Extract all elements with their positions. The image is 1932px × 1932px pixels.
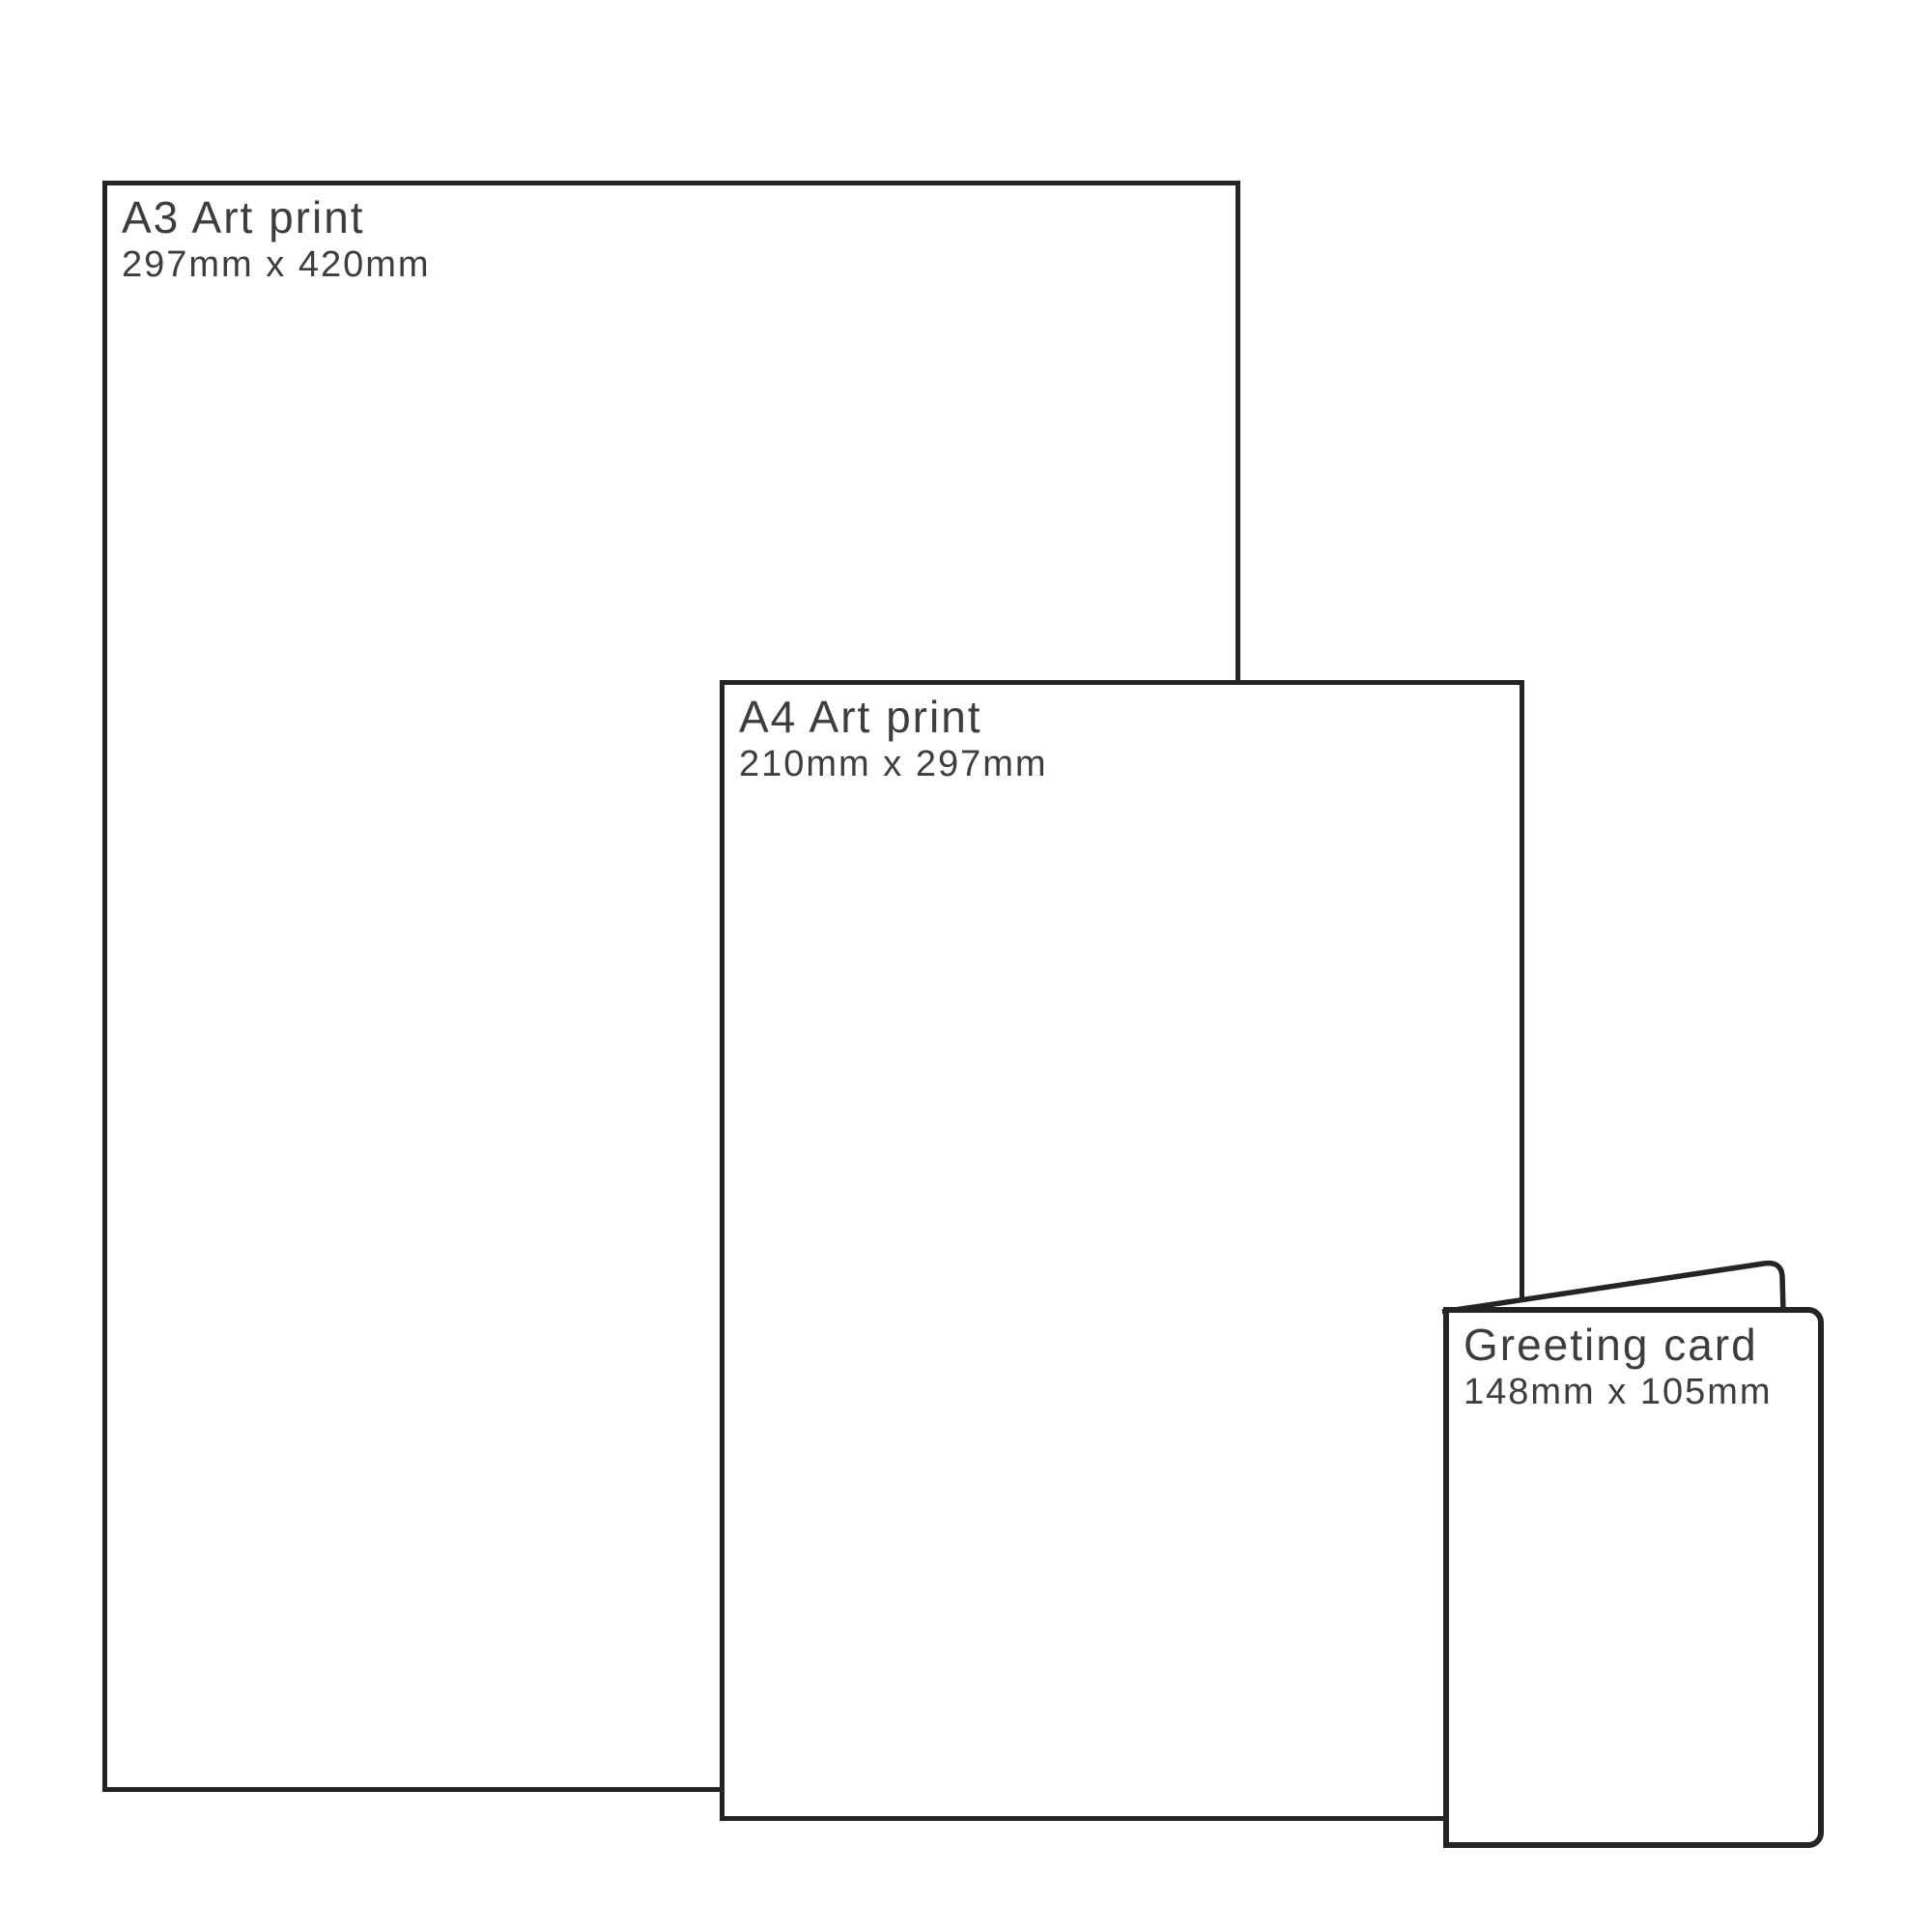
a3-dimensions: 297mm x 420mm	[122, 243, 1230, 288]
greeting-card-title: Greeting card	[1463, 1320, 1812, 1371]
a4-dimensions: 210mm x 297mm	[739, 743, 1514, 787]
size-comparison-diagram: A3 Art print 297mm x 420mm A4 Art print …	[0, 0, 1932, 1932]
a4-print-outline: A4 Art print 210mm x 297mm	[720, 680, 1524, 1821]
a4-title: A4 Art print	[739, 692, 1514, 743]
a3-label: A3 Art print 297mm x 420mm	[107, 185, 1236, 287]
greeting-card-label: Greeting card 148mm x 105mm	[1449, 1313, 1818, 1414]
greeting-card-front: Greeting card 148mm x 105mm	[1443, 1307, 1824, 1848]
greeting-card-dimensions: 148mm x 105mm	[1463, 1371, 1812, 1415]
a3-title: A3 Art print	[122, 192, 1230, 243]
a4-label: A4 Art print 210mm x 297mm	[724, 685, 1520, 786]
